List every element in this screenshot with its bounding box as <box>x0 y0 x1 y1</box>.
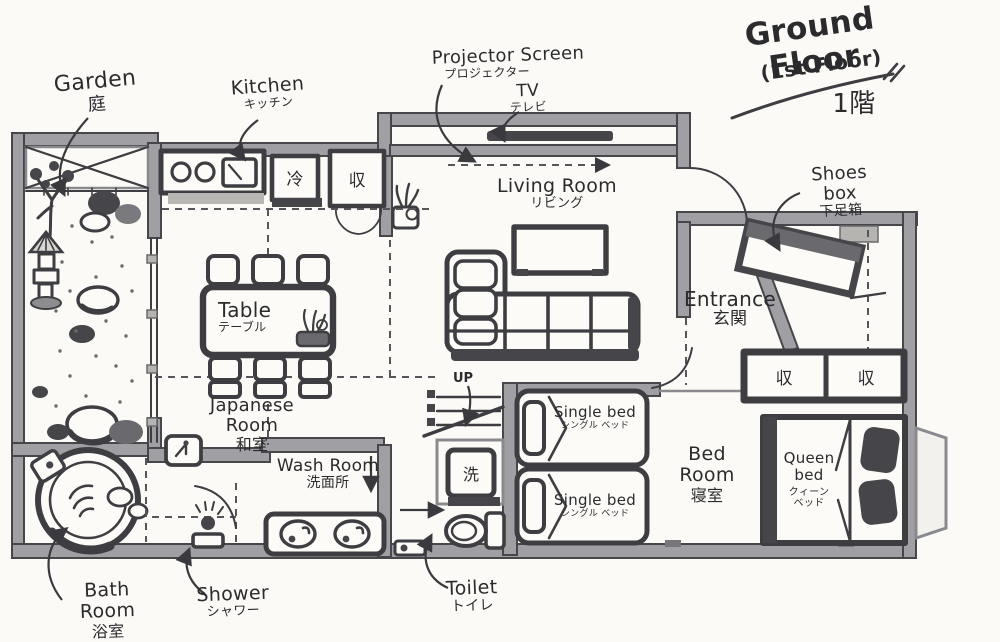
paper-holder <box>395 541 425 555</box>
single-bed-bottom-label: Single bed シングル ベッド <box>550 492 640 519</box>
chair <box>298 256 328 284</box>
chair <box>300 358 330 397</box>
japanese-room-label: Japanese Room 和室 <box>183 396 321 454</box>
fridge-label: 冷 <box>287 170 304 190</box>
living-room-area <box>390 131 639 382</box>
projector-screen-label: Projector Screen プロジェクター <box>431 43 592 82</box>
shower-area <box>193 486 236 547</box>
closet-right-label: 収 <box>858 369 875 389</box>
tv-unit <box>487 131 613 141</box>
pillow <box>859 426 901 475</box>
stone-lantern <box>30 232 62 309</box>
chair <box>210 358 240 397</box>
bath-room-label: Bath Room 浴室 <box>59 578 156 642</box>
kitchen-storage-label: 収 <box>349 171 366 191</box>
kitchen-label: Kitchen キッチン <box>227 73 309 113</box>
plant <box>393 184 418 228</box>
tv-label: TV テレビ <box>504 81 551 115</box>
stairs-up-label: UP <box>453 371 473 386</box>
bed-room-label: Bed Room 寝室 <box>658 444 756 504</box>
shoes-box-label: Shoes box 下足箱 <box>794 162 887 223</box>
toilet-tank <box>486 513 504 548</box>
closet-left-label: 収 <box>776 369 793 389</box>
toilet-label: Toilet トイレ <box>431 577 512 617</box>
pillow <box>524 480 544 532</box>
single-bed-top-label: Single bed シングル ベッド <box>550 404 640 431</box>
chair <box>255 358 285 397</box>
washing-machine-label: 洗 <box>463 465 479 484</box>
table-label: Table テーブル <box>218 299 288 335</box>
living-room-label: Living Room リビング <box>492 176 622 212</box>
entrance-label: Entrance 玄関 <box>678 288 782 329</box>
pillow <box>857 478 898 526</box>
garden-area <box>26 147 148 444</box>
wash-room-label: Wash Room 洗面所 <box>275 457 381 492</box>
queen-bed-label: Queen bed クィーン ベッド <box>778 450 840 509</box>
floor-plan: 冷 収 収 収 洗 UP Ground Floor (1st Floor) 1階… <box>0 0 1000 642</box>
bedroom-closets <box>744 352 904 400</box>
shower-head <box>201 516 215 530</box>
coffee-table <box>514 227 606 273</box>
page-title-ja: 1階 <box>824 90 884 119</box>
engawa-sliding-doors <box>147 238 157 442</box>
shower-label: Shower シャワー <box>189 583 276 622</box>
vanity <box>266 514 384 554</box>
gravel-dots <box>54 224 133 407</box>
chair <box>253 256 283 284</box>
garden-tree <box>30 161 74 238</box>
chair <box>208 256 238 284</box>
bay-window <box>916 428 946 538</box>
stairs <box>424 386 503 436</box>
pillow <box>524 402 544 454</box>
garden-label: Garden 庭 <box>50 66 142 118</box>
